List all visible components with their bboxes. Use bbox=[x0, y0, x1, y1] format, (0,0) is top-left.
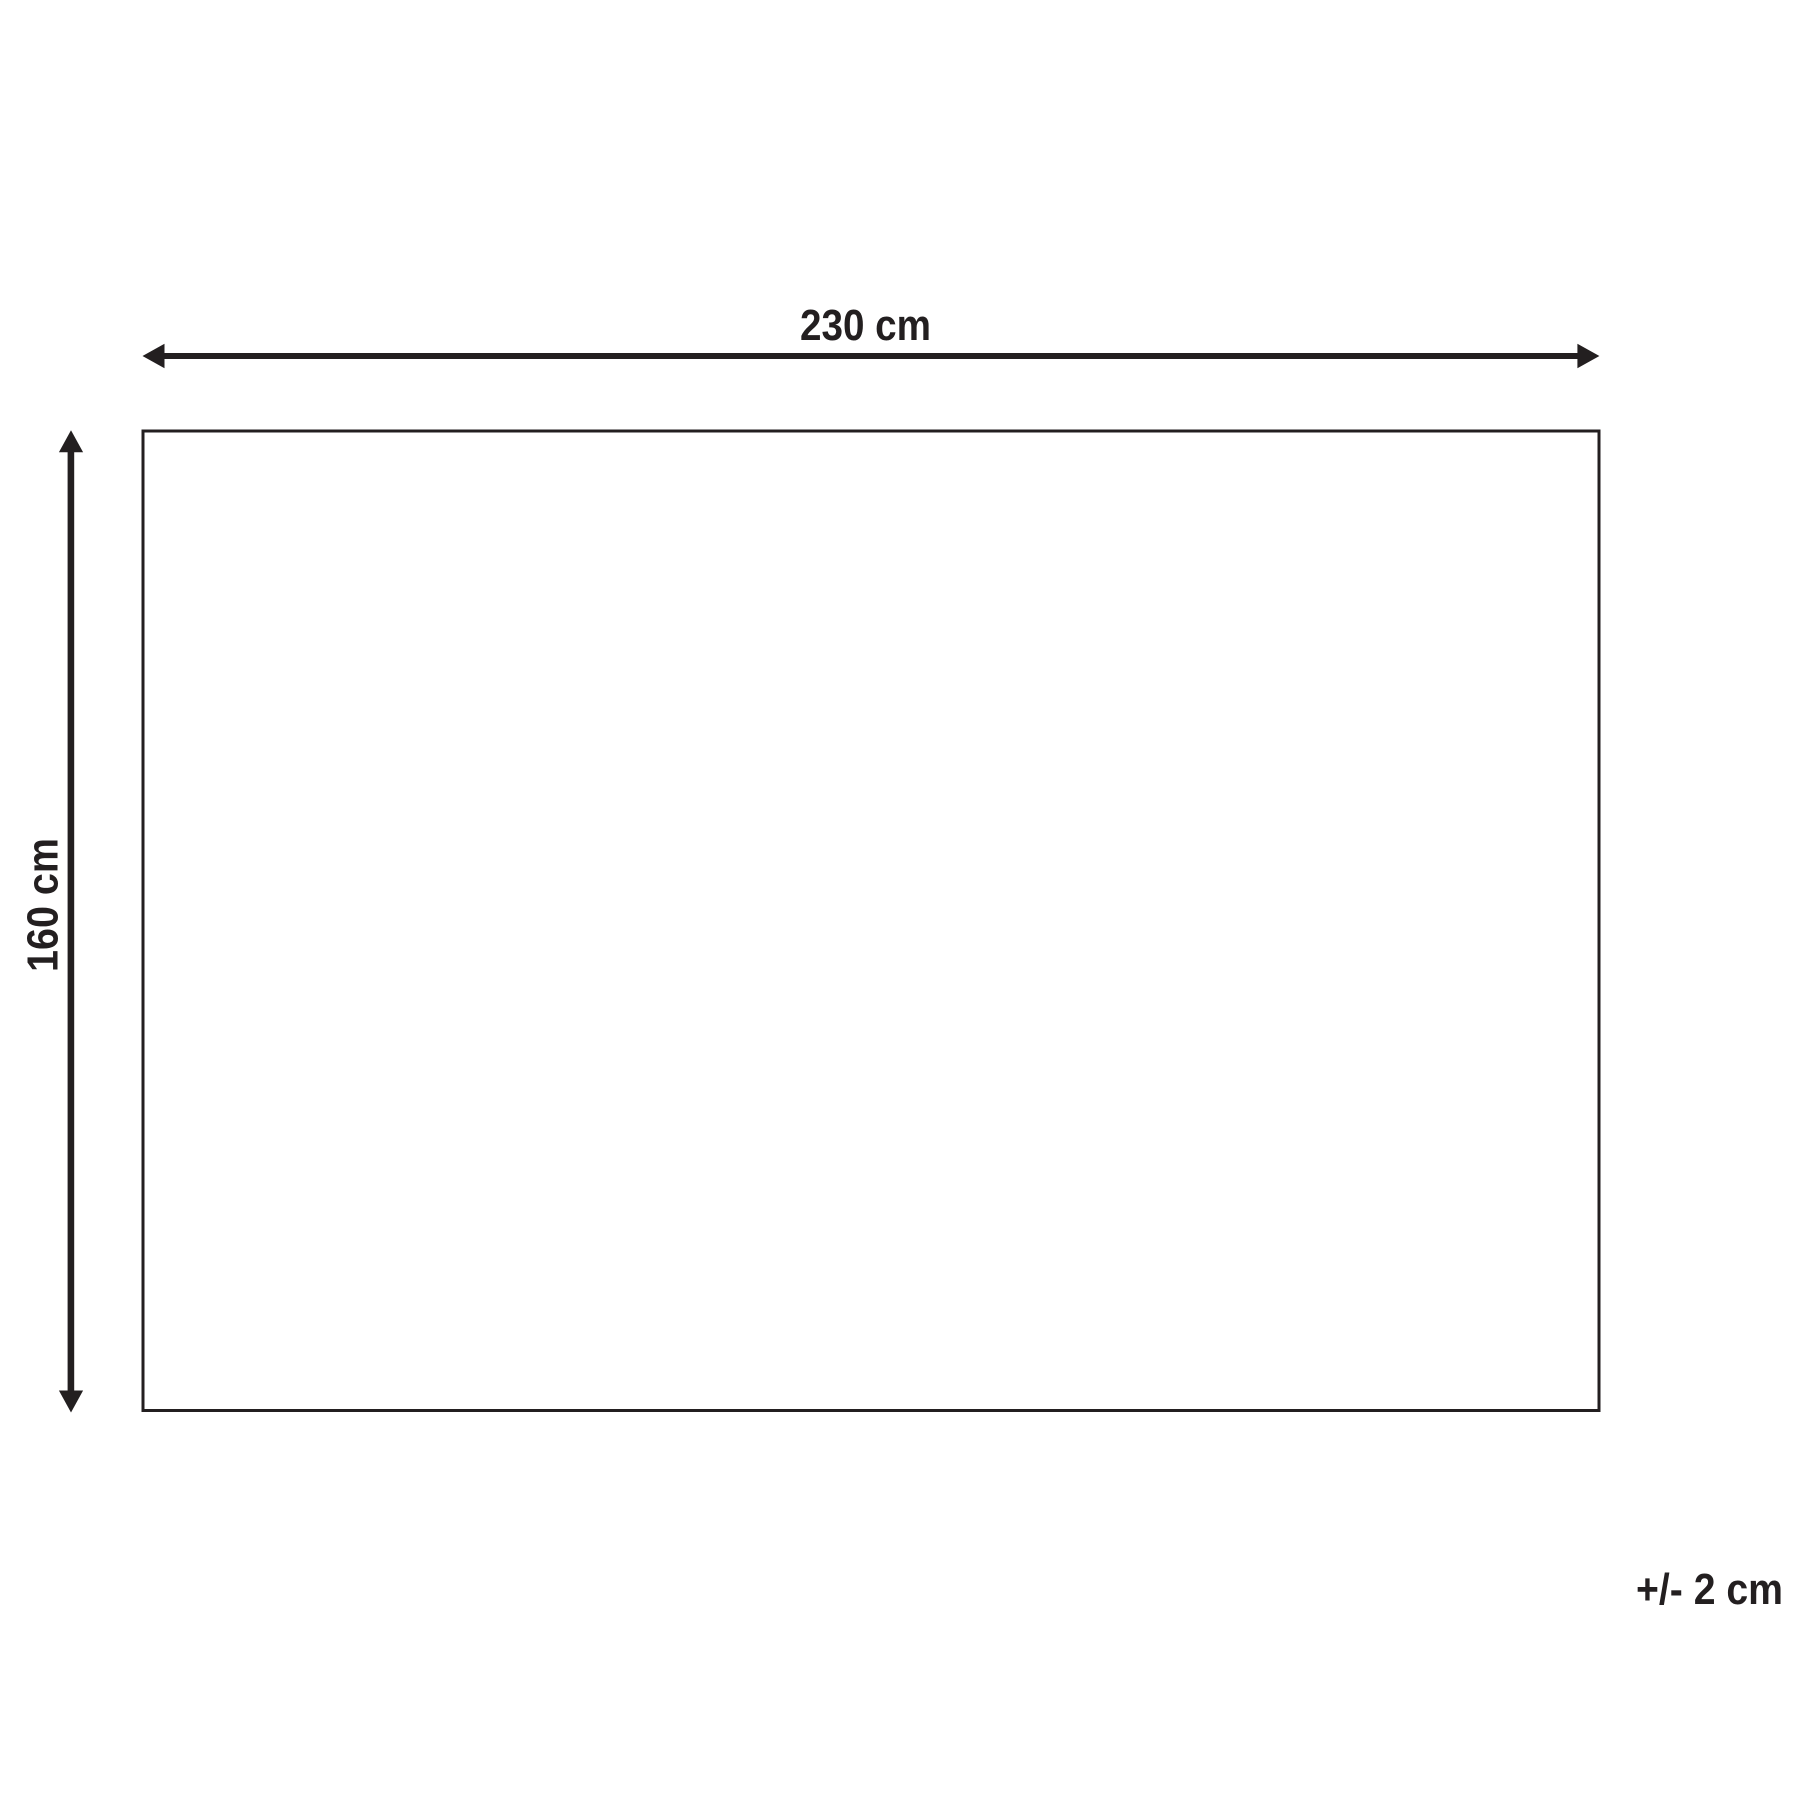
svg-text:+/- 2 cm: +/- 2 cm bbox=[1636, 1565, 1783, 1614]
svg-text:230 cm: 230 cm bbox=[800, 301, 931, 350]
svg-text:160 cm: 160 cm bbox=[19, 838, 68, 972]
